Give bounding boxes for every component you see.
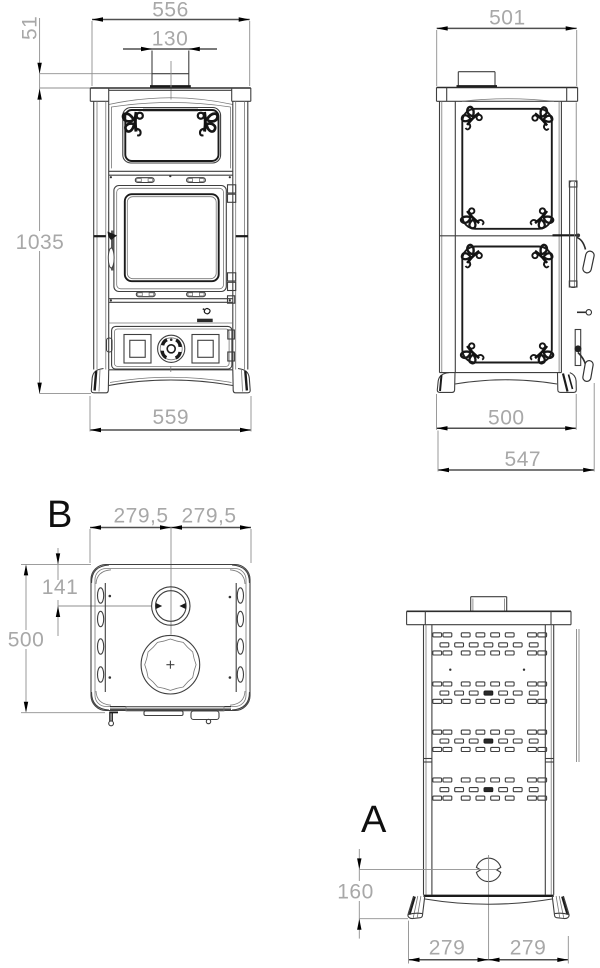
svg-text:500: 500	[8, 629, 45, 652]
svg-text:279,5: 279,5	[113, 505, 168, 528]
svg-text:141: 141	[42, 576, 79, 599]
svg-text:B: B	[47, 494, 72, 536]
svg-text:500: 500	[488, 406, 525, 429]
svg-text:1035: 1035	[16, 231, 65, 254]
svg-text:547: 547	[505, 448, 542, 471]
svg-text:501: 501	[489, 6, 526, 29]
svg-text:51: 51	[19, 16, 42, 40]
svg-text:A: A	[361, 799, 387, 841]
svg-text:279,5: 279,5	[181, 505, 236, 528]
svg-text:559: 559	[153, 406, 190, 429]
svg-text:160: 160	[337, 881, 374, 904]
svg-text:279: 279	[429, 937, 466, 960]
svg-text:279: 279	[510, 937, 547, 960]
svg-text:130: 130	[152, 28, 189, 51]
svg-text:556: 556	[152, 0, 189, 22]
